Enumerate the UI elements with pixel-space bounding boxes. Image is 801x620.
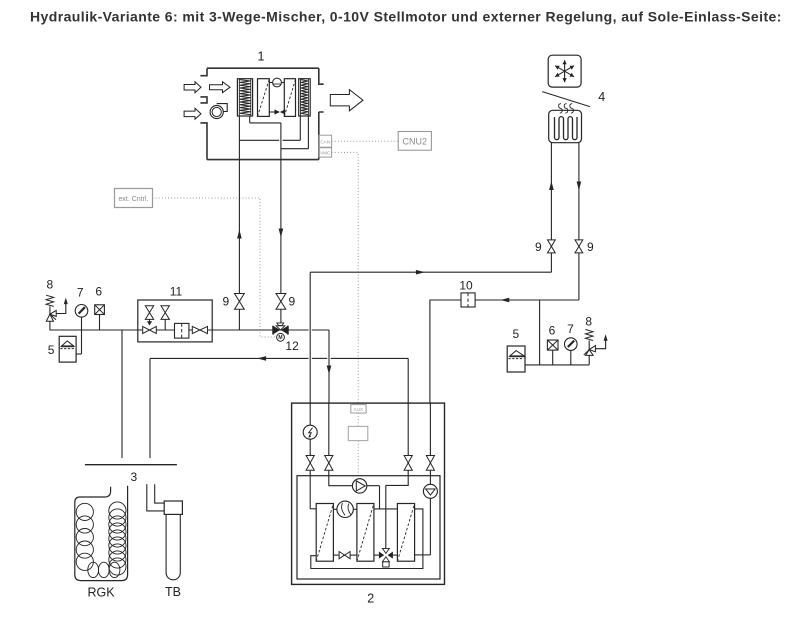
- svg-text:9: 9: [222, 294, 229, 308]
- svg-text:CAN: CAN: [320, 139, 330, 144]
- svg-text:M: M: [278, 335, 282, 341]
- svg-text:11: 11: [170, 285, 183, 299]
- svg-text:Hydraulik-Variante 6: mit 3-We: Hydraulik-Variante 6: mit 3-Wege-Mischer…: [30, 9, 782, 25]
- svg-text:1: 1: [258, 50, 265, 64]
- svg-text:2: 2: [367, 591, 374, 605]
- svg-text:RGK: RGK: [87, 585, 115, 599]
- svg-text:7: 7: [77, 285, 84, 299]
- svg-text:10: 10: [459, 278, 473, 292]
- svg-text:5: 5: [48, 343, 55, 357]
- svg-text:ext. Cntrl.: ext. Cntrl.: [119, 196, 149, 203]
- svg-text:5: 5: [512, 327, 519, 341]
- svg-text:9: 9: [288, 294, 295, 308]
- svg-text:AUX: AUX: [354, 407, 363, 412]
- svg-text:8: 8: [585, 315, 592, 329]
- svg-text:VMC: VMC: [320, 151, 331, 156]
- svg-text:7: 7: [567, 322, 574, 336]
- svg-text:CNU2: CNU2: [403, 136, 428, 146]
- svg-text:12: 12: [285, 339, 299, 353]
- svg-text:6: 6: [95, 285, 102, 299]
- svg-text:3: 3: [130, 470, 137, 484]
- svg-text:4: 4: [598, 90, 605, 104]
- svg-text:TB: TB: [165, 585, 181, 599]
- svg-text:9: 9: [587, 240, 594, 254]
- svg-text:9: 9: [535, 240, 542, 254]
- svg-text:6: 6: [549, 324, 556, 338]
- svg-text:8: 8: [46, 277, 53, 291]
